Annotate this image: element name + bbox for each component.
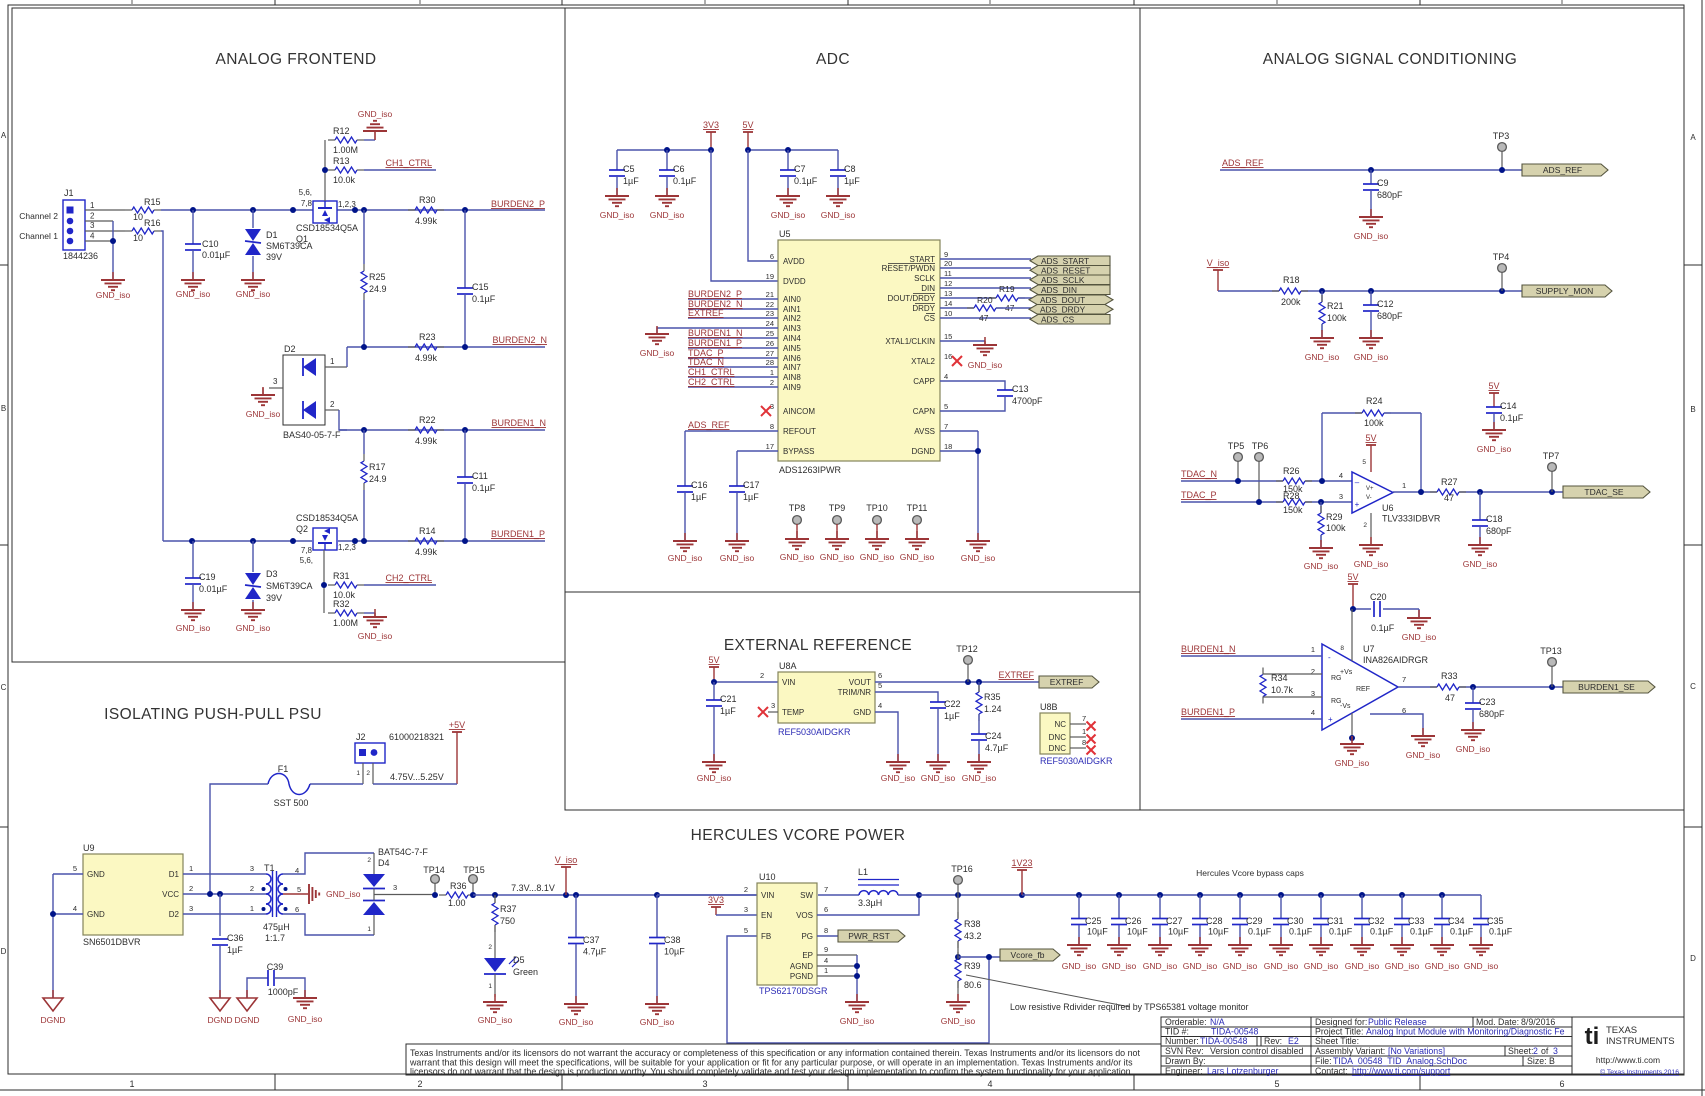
svg-text:BURDEN2_N: BURDEN2_N xyxy=(492,335,547,345)
svg-text:0.1µF: 0.1µF xyxy=(1489,927,1513,937)
svg-text:5: 5 xyxy=(73,864,77,873)
svg-text:CH2_CTRL: CH2_CTRL xyxy=(688,377,735,387)
svg-text:ANALOG SIGNAL CONDITIONING: ANALOG SIGNAL CONDITIONING xyxy=(1263,51,1517,68)
svg-text:FB: FB xyxy=(761,932,771,941)
svg-text:3V3: 3V3 xyxy=(703,120,719,130)
svg-text:20: 20 xyxy=(944,259,952,268)
svg-text:U9: U9 xyxy=(83,843,95,853)
svg-text:AIN2: AIN2 xyxy=(783,314,801,323)
svg-text:R15: R15 xyxy=(144,197,161,207)
svg-text:GND_iso: GND_iso xyxy=(1305,352,1340,362)
svg-text:C: C xyxy=(1690,682,1696,691)
svg-text:GND_iso: GND_iso xyxy=(640,348,675,358)
svg-text:E2: E2 xyxy=(1288,1036,1299,1046)
svg-text:BURDEN1_P: BURDEN1_P xyxy=(491,529,545,539)
svg-text:GND_iso: GND_iso xyxy=(1425,961,1460,971)
svg-text:GND_iso: GND_iso xyxy=(1335,758,1370,768)
svg-text:5V: 5V xyxy=(1365,433,1376,443)
svg-text:0.1µF: 0.1µF xyxy=(472,294,496,304)
svg-text:GND_iso: GND_iso xyxy=(962,773,997,783)
svg-text:TP6: TP6 xyxy=(1252,441,1269,451)
svg-text:5: 5 xyxy=(1362,459,1366,466)
svg-text:ti: ti xyxy=(1585,1023,1600,1050)
svg-text:TP14: TP14 xyxy=(423,865,445,875)
svg-text:Mod. Date:: Mod. Date: xyxy=(1476,1017,1519,1027)
svg-text:R32: R32 xyxy=(333,599,350,609)
svg-text:24: 24 xyxy=(766,319,774,328)
svg-text:C21: C21 xyxy=(720,694,737,704)
svg-text:GND_iso: GND_iso xyxy=(1062,961,1097,971)
svg-text:AVSS: AVSS xyxy=(914,427,935,436)
svg-text:C14: C14 xyxy=(1500,401,1517,411)
svg-text:4.99k: 4.99k xyxy=(415,216,438,226)
svg-text:EXTREF: EXTREF xyxy=(998,670,1034,680)
svg-text:AIN5: AIN5 xyxy=(783,344,801,353)
svg-text:TP3: TP3 xyxy=(1493,131,1510,141)
svg-text:GND_iso: GND_iso xyxy=(1223,961,1258,971)
svg-text:680pF: 680pF xyxy=(1377,190,1403,200)
svg-text:TP12: TP12 xyxy=(956,644,978,654)
svg-text:TDAC_N: TDAC_N xyxy=(1181,469,1217,479)
svg-text:GND: GND xyxy=(853,708,871,717)
svg-text:1.00M: 1.00M xyxy=(333,145,358,155)
svg-text:GND_iso: GND_iso xyxy=(1183,961,1218,971)
svg-text:R12: R12 xyxy=(333,126,350,136)
svg-text:ADS_SCLK: ADS_SCLK xyxy=(1041,275,1085,285)
svg-text:BURDEN2_P: BURDEN2_P xyxy=(491,199,545,209)
svg-text:ADS_START: ADS_START xyxy=(1041,256,1089,266)
svg-text:Green: Green xyxy=(513,967,538,977)
svg-text:47: 47 xyxy=(1445,693,1455,703)
svg-text:19: 19 xyxy=(766,272,774,281)
svg-text:BURDEN2_P: BURDEN2_P xyxy=(688,289,742,299)
svg-text:2: 2 xyxy=(189,884,193,893)
svg-text:GND_iso: GND_iso xyxy=(1354,559,1389,569)
svg-text:R25: R25 xyxy=(369,272,386,282)
svg-text:0.1µF: 0.1µF xyxy=(1370,927,1394,937)
svg-text:8/9/2016: 8/9/2016 xyxy=(1521,1017,1555,1027)
svg-text:U7: U7 xyxy=(1363,644,1375,654)
svg-text:VOUT: VOUT xyxy=(849,678,871,687)
svg-text:2: 2 xyxy=(1311,667,1315,676)
svg-text:VIN: VIN xyxy=(761,891,775,900)
svg-text:-Vs: -Vs xyxy=(1340,703,1351,710)
svg-text:5,6,: 5,6, xyxy=(300,556,313,565)
svg-text:1µF: 1µF xyxy=(691,492,707,502)
svg-text:http://www.ti.com/support: http://www.ti.com/support xyxy=(1352,1066,1451,1076)
svg-text:5: 5 xyxy=(878,681,882,690)
svg-text:GND_iso: GND_iso xyxy=(668,553,703,563)
svg-text:U10: U10 xyxy=(759,872,776,882)
svg-text:4700pF: 4700pF xyxy=(1012,396,1043,406)
svg-text:Project Title:: Project Title: xyxy=(1315,1027,1363,1037)
svg-text:0.1µF: 0.1µF xyxy=(1450,927,1474,937)
svg-text:7: 7 xyxy=(1402,675,1406,684)
svg-text:ADS_REF: ADS_REF xyxy=(688,420,730,430)
svg-text:TIDA-00548: TIDA-00548 xyxy=(1200,1036,1248,1046)
svg-text:GND_iso: GND_iso xyxy=(236,289,271,299)
svg-text:39V: 39V xyxy=(266,593,282,603)
svg-text:© Texas Instruments 2016: © Texas Instruments 2016 xyxy=(1600,1068,1679,1076)
svg-text:GND: GND xyxy=(87,870,105,879)
svg-text:1: 1 xyxy=(367,926,371,933)
svg-text:1µF: 1µF xyxy=(720,706,736,716)
svg-text:2: 2 xyxy=(417,1079,422,1089)
svg-text:C32: C32 xyxy=(1368,916,1385,926)
svg-text:C9: C9 xyxy=(1377,178,1389,188)
svg-text:GND_iso: GND_iso xyxy=(881,773,916,783)
svg-text:BURDEN1_P: BURDEN1_P xyxy=(688,338,742,348)
svg-text:+5V: +5V xyxy=(449,720,465,730)
svg-text:1µF: 1µF xyxy=(844,176,860,186)
svg-text:V_iso: V_iso xyxy=(1207,258,1230,268)
svg-text:8: 8 xyxy=(1082,738,1086,747)
svg-text:TID #:: TID #: xyxy=(1165,1027,1189,1037)
svg-text:J1: J1 xyxy=(64,188,74,198)
svg-text:C28: C28 xyxy=(1206,916,1223,926)
svg-text:GND_iso: GND_iso xyxy=(326,889,361,899)
svg-text:GND_iso: GND_iso xyxy=(820,552,855,562)
svg-text:INSTRUMENTS: INSTRUMENTS xyxy=(1606,1036,1675,1047)
svg-text:+: + xyxy=(1328,715,1333,724)
svg-text:4.99k: 4.99k xyxy=(415,436,438,446)
svg-text:28: 28 xyxy=(766,358,774,367)
svg-text:–: – xyxy=(1355,478,1360,487)
svg-text:3: 3 xyxy=(771,701,775,710)
svg-text:1844236: 1844236 xyxy=(63,251,98,261)
svg-text:ISOLATING PUSH-PULL PSU: ISOLATING PUSH-PULL PSU xyxy=(104,706,322,723)
svg-text:61000218321: 61000218321 xyxy=(389,732,444,742)
svg-text:18: 18 xyxy=(944,442,952,451)
svg-text:AGND: AGND xyxy=(790,962,813,971)
svg-text:16: 16 xyxy=(944,352,952,361)
svg-text:U5: U5 xyxy=(779,229,791,239)
svg-text:RG: RG xyxy=(1331,698,1342,705)
svg-text:R31: R31 xyxy=(333,571,350,581)
svg-text:7,8: 7,8 xyxy=(301,546,313,555)
svg-text:R21: R21 xyxy=(1327,301,1344,311)
svg-text:GND_iso: GND_iso xyxy=(640,1017,675,1027)
svg-text:1: 1 xyxy=(488,983,492,990)
svg-text:680pF: 680pF xyxy=(1486,526,1512,536)
svg-text:4: 4 xyxy=(878,701,882,710)
svg-text:11: 11 xyxy=(944,269,952,278)
svg-text:8: 8 xyxy=(770,422,774,431)
svg-text:INA826AIDRGR: INA826AIDRGR xyxy=(1363,655,1429,665)
svg-text:BURDEN1_N: BURDEN1_N xyxy=(491,418,546,428)
svg-text:RESET/PWDN: RESET/PWDN xyxy=(882,264,936,273)
svg-text:4.99k: 4.99k xyxy=(415,547,438,557)
svg-text:Engineer:: Engineer: xyxy=(1165,1066,1203,1076)
svg-text:GND_iso: GND_iso xyxy=(1456,744,1491,754)
svg-text:Sheet:: Sheet: xyxy=(1508,1046,1533,1056)
svg-text:EXTREF: EXTREF xyxy=(1050,677,1084,687)
svg-text:Lars Lotzenburger: Lars Lotzenburger xyxy=(1207,1066,1278,1076)
svg-text:BURDEN1_SE: BURDEN1_SE xyxy=(1578,682,1635,692)
svg-text:+: + xyxy=(1355,500,1360,509)
svg-text:D3: D3 xyxy=(266,569,278,579)
svg-text:[No Variations]: [No Variations] xyxy=(1388,1046,1445,1056)
svg-text:R39: R39 xyxy=(964,961,981,971)
svg-text:AIN4: AIN4 xyxy=(783,334,801,343)
svg-text:8: 8 xyxy=(824,926,828,935)
svg-text:750: 750 xyxy=(500,916,515,926)
svg-text:C8: C8 xyxy=(844,164,856,174)
svg-text:EXTERNAL REFERENCE: EXTERNAL REFERENCE xyxy=(724,637,912,654)
svg-text:25: 25 xyxy=(766,329,774,338)
svg-text:AVDD: AVDD xyxy=(783,257,805,266)
svg-text:1: 1 xyxy=(330,357,335,366)
svg-text:TP7: TP7 xyxy=(1543,451,1560,461)
svg-text:15: 15 xyxy=(944,332,952,341)
svg-text:ADS_DRDY: ADS_DRDY xyxy=(1040,304,1086,314)
svg-text:1,2,3: 1,2,3 xyxy=(338,543,356,552)
svg-text:U8B: U8B xyxy=(1040,702,1058,712)
svg-text:R30: R30 xyxy=(419,195,436,205)
svg-text:GND_iso: GND_iso xyxy=(1143,961,1178,971)
svg-text:CSD18534Q5A: CSD18534Q5A xyxy=(296,513,358,523)
svg-text:27: 27 xyxy=(766,349,774,358)
svg-text:2: 2 xyxy=(90,212,95,221)
svg-text:D: D xyxy=(1,947,7,956)
svg-text:6: 6 xyxy=(1559,1079,1564,1089)
svg-text:TLV333IDBVR: TLV333IDBVR xyxy=(1382,514,1441,524)
svg-text:GND_iso: GND_iso xyxy=(1345,961,1380,971)
svg-text:GND_iso: GND_iso xyxy=(1102,961,1137,971)
svg-text:GND_iso: GND_iso xyxy=(1477,444,1512,454)
svg-text:DRDY: DRDY xyxy=(912,304,935,313)
svg-text:C6: C6 xyxy=(673,164,685,174)
svg-text:47: 47 xyxy=(1444,493,1454,503)
svg-text:TP15: TP15 xyxy=(463,865,485,875)
svg-text:ADS_RESET: ADS_RESET xyxy=(1041,265,1090,275)
svg-text:17: 17 xyxy=(766,442,774,451)
svg-text:6: 6 xyxy=(295,905,299,914)
svg-text:3: 3 xyxy=(250,864,254,873)
svg-text:3V3: 3V3 xyxy=(708,895,724,905)
svg-text:14: 14 xyxy=(944,299,952,308)
svg-text:GND_iso: GND_iso xyxy=(941,1016,976,1026)
svg-text:DIN: DIN xyxy=(921,284,935,293)
svg-text:Low resistive Rdivider require: Low resistive Rdivider required by TPS65… xyxy=(1010,1002,1249,1012)
svg-text:0.1µF: 0.1µF xyxy=(1500,413,1524,423)
svg-text:C37: C37 xyxy=(583,935,600,945)
svg-text:U8A: U8A xyxy=(779,661,797,671)
svg-text:0.1µF: 0.1µF xyxy=(1410,927,1434,937)
svg-text:DGND: DGND xyxy=(207,1015,232,1025)
svg-text:TIDA-00548: TIDA-00548 xyxy=(1211,1027,1259,1037)
svg-text:Public Release: Public Release xyxy=(1368,1017,1427,1027)
svg-text:GND_iso: GND_iso xyxy=(1406,750,1441,760)
svg-text:GND_iso: GND_iso xyxy=(821,210,856,220)
svg-text:43.2: 43.2 xyxy=(964,931,982,941)
svg-text:C25: C25 xyxy=(1085,916,1102,926)
svg-text:1: 1 xyxy=(1082,727,1086,736)
svg-text:0.1µF: 0.1µF xyxy=(1329,927,1353,937)
svg-text:BURDEN1_P: BURDEN1_P xyxy=(1181,707,1235,717)
svg-text:680pF: 680pF xyxy=(1377,311,1403,321)
svg-text:1µF: 1µF xyxy=(743,492,759,502)
svg-text:EP: EP xyxy=(802,951,813,960)
svg-text:9: 9 xyxy=(944,250,948,259)
svg-text:C15: C15 xyxy=(472,282,489,292)
svg-text:2: 2 xyxy=(760,671,764,680)
svg-text:R27: R27 xyxy=(1441,477,1458,487)
svg-text:3: 3 xyxy=(744,905,748,914)
svg-text:C20: C20 xyxy=(1370,592,1387,602)
svg-text:13: 13 xyxy=(944,289,952,298)
svg-text:GND_iso: GND_iso xyxy=(921,773,956,783)
svg-text:10µF: 10µF xyxy=(664,947,685,957)
svg-text:4.75V...5.25V: 4.75V...5.25V xyxy=(390,772,444,782)
svg-text:TDAC_N: TDAC_N xyxy=(688,357,724,367)
svg-text:C18: C18 xyxy=(1486,514,1503,524)
svg-text:TDAC_SE: TDAC_SE xyxy=(1584,487,1624,497)
svg-text:1V23: 1V23 xyxy=(1011,858,1032,868)
svg-text:GND_iso: GND_iso xyxy=(176,623,211,633)
svg-text:GND_iso: GND_iso xyxy=(720,553,755,563)
svg-text:10µF: 10µF xyxy=(1087,927,1108,937)
svg-text:VCC: VCC xyxy=(162,890,179,899)
svg-text:Analog Input Module with Monit: Analog Input Module with Monitoring/Diag… xyxy=(1366,1027,1565,1037)
svg-text:2: 2 xyxy=(1363,522,1367,529)
svg-text:Designed for:: Designed for: xyxy=(1315,1017,1367,1027)
svg-text:0.1µF: 0.1µF xyxy=(1248,927,1272,937)
svg-text:12: 12 xyxy=(944,279,952,288)
svg-text:C: C xyxy=(1,683,7,692)
svg-text:XTAL1/CLKIN: XTAL1/CLKIN xyxy=(885,337,935,346)
svg-text:ADS_DIN: ADS_DIN xyxy=(1041,285,1077,295)
svg-text:BAT54C-7-F: BAT54C-7-F xyxy=(378,847,428,857)
svg-text:GND_iso: GND_iso xyxy=(697,773,732,783)
svg-text:REF5030AIDGKR: REF5030AIDGKR xyxy=(1040,756,1113,766)
svg-text:R23: R23 xyxy=(419,332,436,342)
svg-text:VOS: VOS xyxy=(796,911,813,920)
svg-text:C19: C19 xyxy=(199,572,216,582)
svg-text:7: 7 xyxy=(824,885,828,894)
svg-text:XTAL2: XTAL2 xyxy=(911,357,935,366)
svg-text:File:: File: xyxy=(1315,1056,1332,1066)
svg-text:2: 2 xyxy=(367,857,371,864)
svg-text:DGND: DGND xyxy=(911,447,935,456)
svg-text:10µF: 10µF xyxy=(1127,927,1148,937)
svg-text:5: 5 xyxy=(1274,1079,1279,1089)
svg-text:10: 10 xyxy=(133,233,143,243)
svg-text:R35: R35 xyxy=(984,692,1001,702)
svg-text:C35: C35 xyxy=(1487,916,1504,926)
svg-text:TDAC_P: TDAC_P xyxy=(1181,490,1217,500)
svg-text:BAS40-05-7-F: BAS40-05-7-F xyxy=(283,430,341,440)
svg-text:DNC: DNC xyxy=(1049,733,1067,742)
svg-text:1.00M: 1.00M xyxy=(333,618,358,628)
svg-text:GND_iso: GND_iso xyxy=(96,290,131,300)
svg-text:BURDEN1_N: BURDEN1_N xyxy=(1181,644,1236,654)
svg-text:GND_iso: GND_iso xyxy=(1463,559,1498,569)
svg-text:DOUT/DRDY: DOUT/DRDY xyxy=(887,294,935,303)
svg-text:ADS_CS: ADS_CS xyxy=(1041,314,1075,324)
svg-text:GND_iso: GND_iso xyxy=(900,552,935,562)
svg-text:150k: 150k xyxy=(1283,505,1303,515)
svg-text:Rev:: Rev: xyxy=(1264,1036,1282,1046)
svg-text:1:1.7: 1:1.7 xyxy=(265,933,285,943)
svg-text:C36: C36 xyxy=(227,933,244,943)
svg-text:10µF: 10µF xyxy=(1208,927,1229,937)
svg-text:EN: EN xyxy=(761,911,772,920)
svg-text:39V: 39V xyxy=(266,252,282,262)
svg-text:1.00: 1.00 xyxy=(448,898,466,908)
svg-text:5: 5 xyxy=(297,885,301,894)
svg-text:GND_iso: GND_iso xyxy=(288,1014,323,1024)
svg-text:0.1µF: 0.1µF xyxy=(472,483,496,493)
svg-text:J2: J2 xyxy=(356,732,366,742)
svg-text:V_iso: V_iso xyxy=(555,855,578,865)
svg-text:GND_iso: GND_iso xyxy=(1304,561,1339,571)
svg-text:1: 1 xyxy=(356,770,360,777)
svg-text:C10: C10 xyxy=(202,239,219,249)
svg-text:Version control disabled: Version control disabled xyxy=(1210,1046,1304,1056)
svg-text:7,8: 7,8 xyxy=(301,199,313,208)
svg-text:R14: R14 xyxy=(419,526,436,536)
svg-text:Drawn By:: Drawn By: xyxy=(1165,1056,1206,1066)
svg-text:GND_iso: GND_iso xyxy=(1354,352,1389,362)
svg-text:TPS62170DSGR: TPS62170DSGR xyxy=(759,986,828,996)
svg-text:AIN6: AIN6 xyxy=(783,354,801,363)
svg-text:24.9: 24.9 xyxy=(369,284,387,294)
svg-text:6: 6 xyxy=(878,671,882,680)
svg-text:10: 10 xyxy=(944,309,952,318)
svg-text:HERCULES VCORE POWER: HERCULES VCORE POWER xyxy=(691,827,906,844)
svg-text:L1: L1 xyxy=(858,867,868,877)
svg-text:5V: 5V xyxy=(708,655,719,665)
svg-text:AIN1: AIN1 xyxy=(783,305,801,314)
svg-text:PGND: PGND xyxy=(790,972,813,981)
svg-text:100k: 100k xyxy=(1326,523,1346,533)
svg-text:100k: 100k xyxy=(1327,313,1347,323)
svg-text:4: 4 xyxy=(1311,708,1315,717)
svg-text:3: 3 xyxy=(189,904,193,913)
svg-text:GND_iso: GND_iso xyxy=(358,109,393,119)
svg-text:80.6: 80.6 xyxy=(964,980,982,990)
svg-text:1.24: 1.24 xyxy=(984,704,1002,714)
svg-text:C23: C23 xyxy=(1479,697,1496,707)
svg-text:GND_iso: GND_iso xyxy=(246,409,281,419)
svg-text:3: 3 xyxy=(273,377,278,386)
svg-text:C29: C29 xyxy=(1246,916,1263,926)
svg-text:R13: R13 xyxy=(333,156,350,166)
svg-text:8: 8 xyxy=(1340,645,1344,652)
svg-text:2: 2 xyxy=(250,884,254,893)
svg-text:R33: R33 xyxy=(1441,671,1458,681)
svg-text:23: 23 xyxy=(766,309,774,318)
svg-text:R20: R20 xyxy=(977,295,993,305)
svg-text:5,6,: 5,6, xyxy=(299,188,312,197)
svg-text:4.7µF: 4.7µF xyxy=(985,743,1009,753)
svg-text:PG: PG xyxy=(801,932,813,941)
svg-text:V+: V+ xyxy=(1366,486,1374,492)
svg-text:CH2_CTRL: CH2_CTRL xyxy=(385,573,432,583)
svg-text:4: 4 xyxy=(987,1079,992,1089)
svg-text:SW: SW xyxy=(800,891,813,900)
svg-text:D1: D1 xyxy=(169,870,180,879)
svg-text:DGND: DGND xyxy=(40,1015,65,1025)
svg-text:7: 7 xyxy=(1082,714,1086,723)
svg-text:4: 4 xyxy=(73,904,77,913)
svg-text:SVN Rev:: SVN Rev: xyxy=(1165,1046,1204,1056)
svg-text:0.1µF: 0.1µF xyxy=(673,176,697,186)
svg-text:1µF: 1µF xyxy=(227,945,243,955)
svg-text:C5: C5 xyxy=(623,164,635,174)
svg-text:22: 22 xyxy=(766,300,774,309)
